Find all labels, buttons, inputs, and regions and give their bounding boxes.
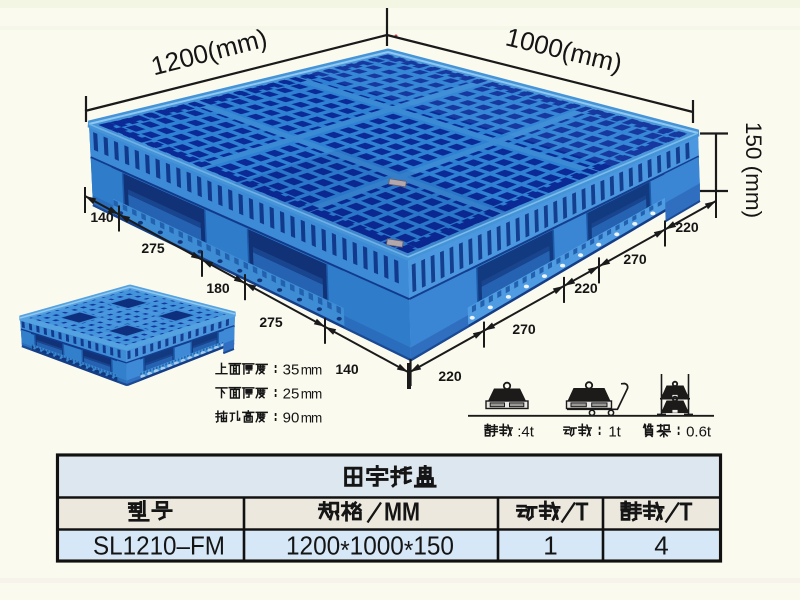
svg-text:140: 140 — [335, 361, 359, 377]
svg-text:T: T — [576, 497, 589, 527]
svg-text:140: 140 — [90, 209, 114, 225]
svg-text:1t: 1t — [608, 424, 621, 441]
svg-text:MM: MM — [384, 497, 420, 527]
svg-text:270: 270 — [623, 251, 647, 267]
svg-text:220: 220 — [574, 280, 598, 296]
svg-text:SL1210–FM: SL1210–FM — [93, 531, 225, 561]
svg-text:0.6t: 0.6t — [686, 424, 712, 441]
svg-text:270: 270 — [512, 321, 536, 337]
svg-text:220: 220 — [675, 219, 699, 235]
svg-text:35: 35 — [283, 362, 300, 379]
svg-text::4t: :4t — [517, 424, 535, 441]
svg-text:90: 90 — [283, 410, 300, 427]
svg-text:mm: mm — [301, 387, 322, 402]
svg-text:180: 180 — [206, 280, 230, 296]
svg-text:1: 1 — [543, 531, 557, 561]
svg-text:mm: mm — [301, 363, 322, 378]
svg-text:275: 275 — [141, 240, 165, 256]
svg-text:150 (mm): 150 (mm) — [741, 122, 766, 218]
svg-text:T: T — [680, 497, 693, 527]
svg-text:mm: mm — [301, 411, 322, 426]
svg-text:275: 275 — [259, 314, 283, 330]
svg-text:25: 25 — [283, 386, 300, 403]
svg-text:220: 220 — [438, 368, 462, 384]
svg-text:4: 4 — [654, 531, 668, 561]
svg-text:1200*1000*150: 1200*1000*150 — [286, 531, 454, 566]
